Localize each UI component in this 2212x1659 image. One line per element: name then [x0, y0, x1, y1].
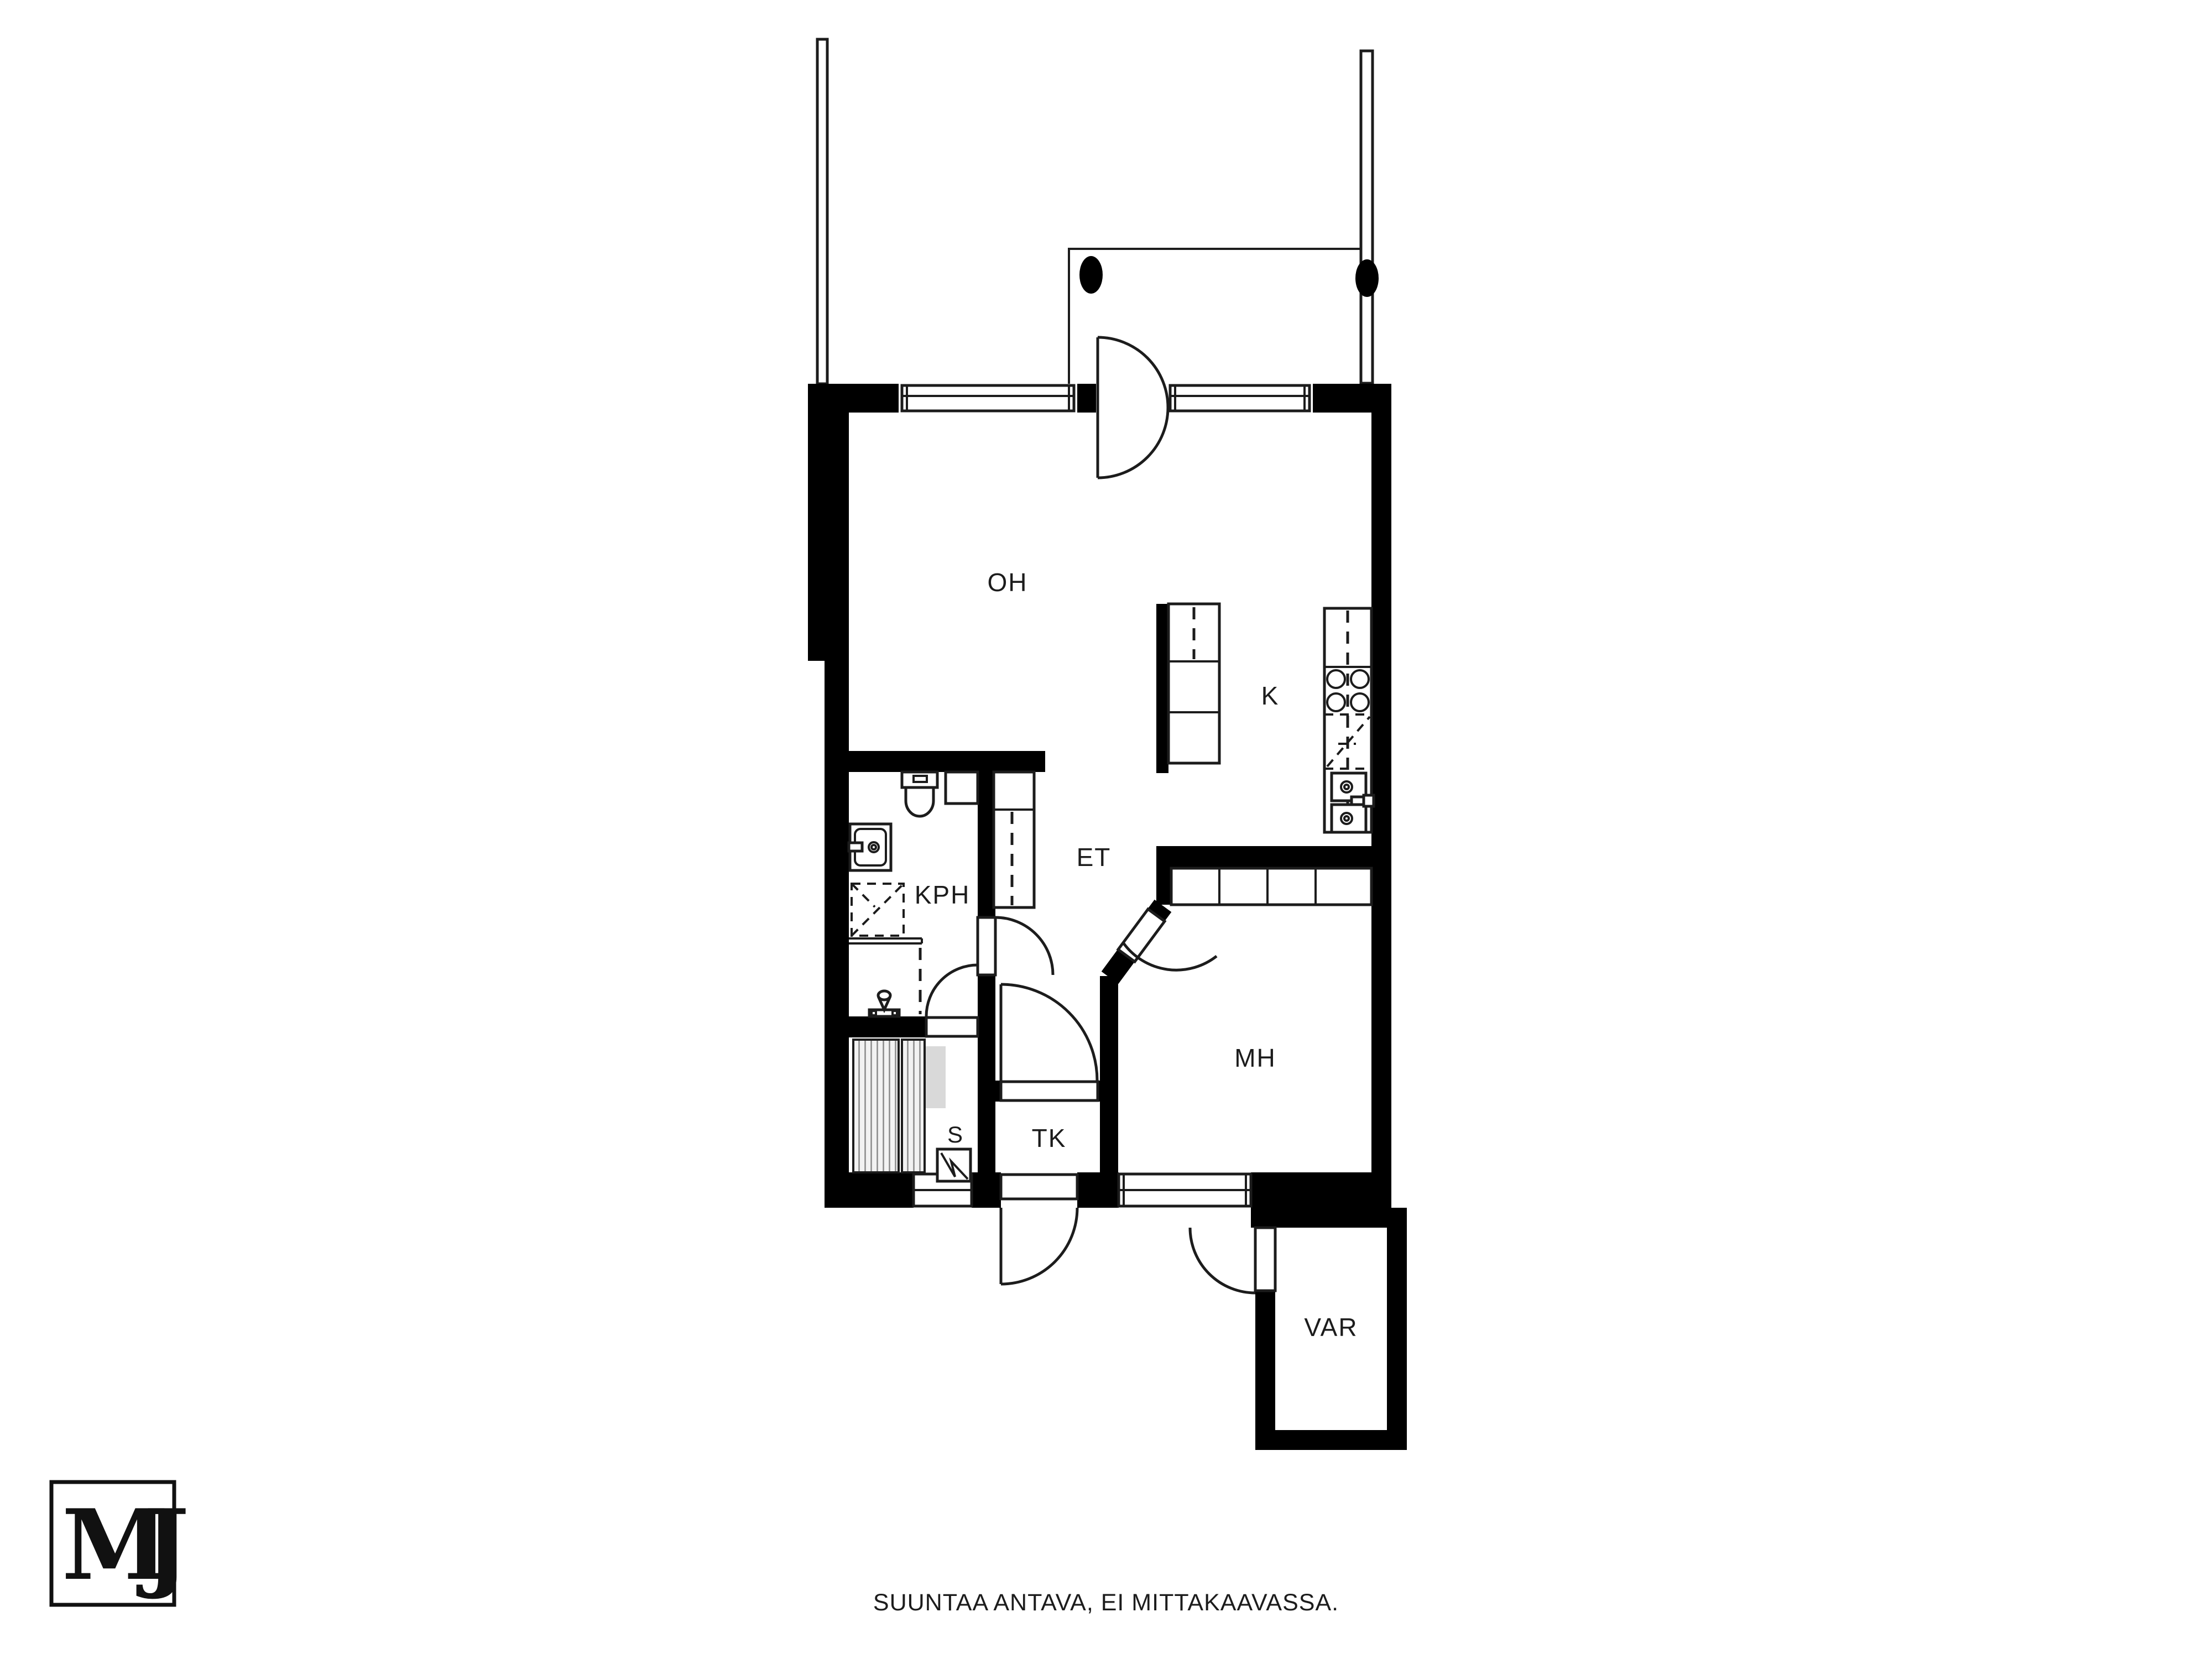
bathroom-cabinet: [946, 772, 978, 804]
balcony-railing-right: [1361, 51, 1373, 383]
page: OH K KPH ET MH S TK VAR MJ SUUNTAA ANTAV…: [0, 0, 2212, 1659]
sauna-heater-icon: [937, 1149, 971, 1181]
wall-segment: [1156, 846, 1391, 868]
balcony-post-icon: [1079, 256, 1103, 294]
toilet-icon: [902, 772, 937, 816]
washbasin-icon: [849, 824, 891, 870]
balcony-post-icon: [1355, 259, 1379, 297]
room-label-s: S: [947, 1121, 963, 1147]
wall-segment: [825, 661, 849, 1208]
kitchen-island: [1168, 604, 1219, 763]
wall-segment: [1255, 1430, 1407, 1450]
floor-plan: OH K KPH ET MH S TK VAR MJ SUUNTAA ANTAV…: [0, 0, 2212, 1659]
room-label-kph: KPH: [915, 880, 971, 909]
sauna-bench: [902, 1040, 925, 1172]
room-label-k: K: [1261, 681, 1280, 710]
wall-segment: [1100, 976, 1118, 1172]
balcony-door-gap: [1096, 384, 1167, 413]
room-label-tk: TK: [1032, 1124, 1067, 1152]
room-label-oh: OH: [988, 568, 1028, 597]
sauna-step: [926, 1046, 946, 1108]
kitchen-island-wall: [1156, 604, 1168, 773]
room-label-et: ET: [1077, 843, 1112, 872]
room-label-mh: MH: [1234, 1044, 1276, 1072]
disclaimer-text: SUUNTAA ANTAVA, EI MITTAKAAVASSA.: [873, 1589, 1339, 1616]
wall-segment: [808, 384, 849, 661]
window-gap: [899, 384, 1077, 413]
bedroom-wardrobe: [1171, 868, 1371, 905]
wall-segment: [978, 1037, 995, 1172]
wall-segment: [849, 751, 1045, 772]
wall-segment: [1387, 1208, 1407, 1450]
balcony-railing-left: [817, 39, 827, 384]
sauna-bench: [853, 1040, 899, 1172]
hallway-wardrobe: [994, 772, 1034, 907]
wall-segment: [825, 1172, 1391, 1208]
logo: MJ: [51, 1482, 186, 1605]
room-label-var: VAR: [1304, 1313, 1358, 1342]
wall-segment: [1156, 868, 1171, 905]
window-gap: [1167, 384, 1313, 413]
